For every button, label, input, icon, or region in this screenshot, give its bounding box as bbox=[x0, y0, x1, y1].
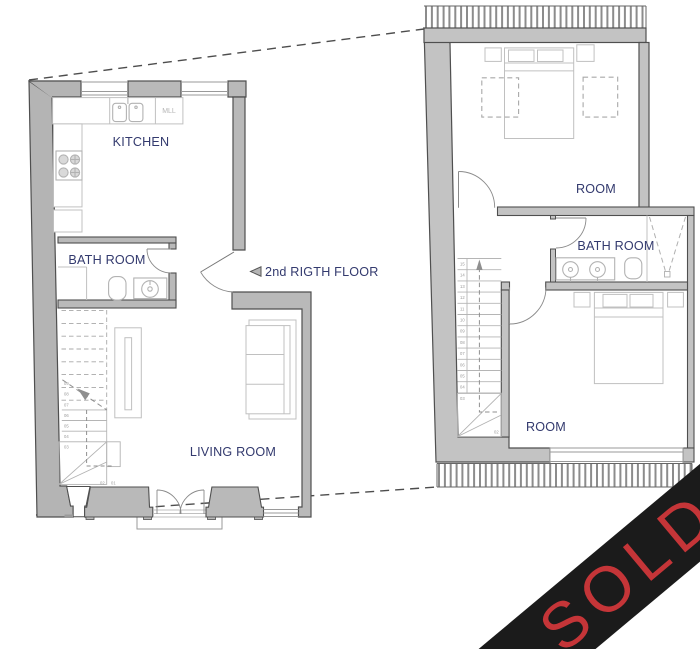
svg-text:04: 04 bbox=[64, 434, 69, 439]
svg-text:KITCHEN: KITCHEN bbox=[113, 135, 170, 149]
svg-text:15: 15 bbox=[460, 262, 465, 267]
svg-text:06: 06 bbox=[460, 362, 465, 367]
svg-text:02: 02 bbox=[100, 481, 105, 486]
svg-text:03: 03 bbox=[460, 396, 465, 401]
svg-text:2nd RIGTH FLOOR: 2nd RIGTH FLOOR bbox=[265, 265, 379, 279]
svg-text:01: 01 bbox=[111, 481, 116, 486]
svg-text:12: 12 bbox=[460, 295, 465, 300]
svg-text:BATH ROOM: BATH ROOM bbox=[68, 253, 145, 267]
svg-text:11: 11 bbox=[460, 306, 465, 311]
svg-text:LIVING ROOM: LIVING ROOM bbox=[190, 445, 276, 459]
svg-text:08: 08 bbox=[64, 392, 69, 397]
svg-text:ROOM: ROOM bbox=[576, 182, 616, 196]
svg-text:07: 07 bbox=[460, 351, 465, 356]
svg-text:05: 05 bbox=[64, 424, 69, 429]
svg-text:BATH ROOM: BATH ROOM bbox=[577, 239, 654, 253]
svg-text:10: 10 bbox=[460, 318, 465, 323]
svg-text:09: 09 bbox=[460, 329, 465, 334]
svg-text:ROOM: ROOM bbox=[526, 420, 566, 434]
svg-text:MLL: MLL bbox=[162, 108, 176, 115]
svg-text:05: 05 bbox=[460, 374, 465, 379]
svg-text:07: 07 bbox=[64, 402, 69, 407]
svg-text:02: 02 bbox=[494, 430, 499, 435]
svg-text:08: 08 bbox=[460, 340, 465, 345]
svg-text:06: 06 bbox=[64, 413, 69, 418]
svg-text:04: 04 bbox=[460, 385, 465, 390]
svg-text:14: 14 bbox=[460, 273, 465, 278]
svg-text:13: 13 bbox=[460, 284, 465, 289]
svg-text:09: 09 bbox=[64, 381, 69, 386]
svg-text:03: 03 bbox=[64, 445, 69, 450]
